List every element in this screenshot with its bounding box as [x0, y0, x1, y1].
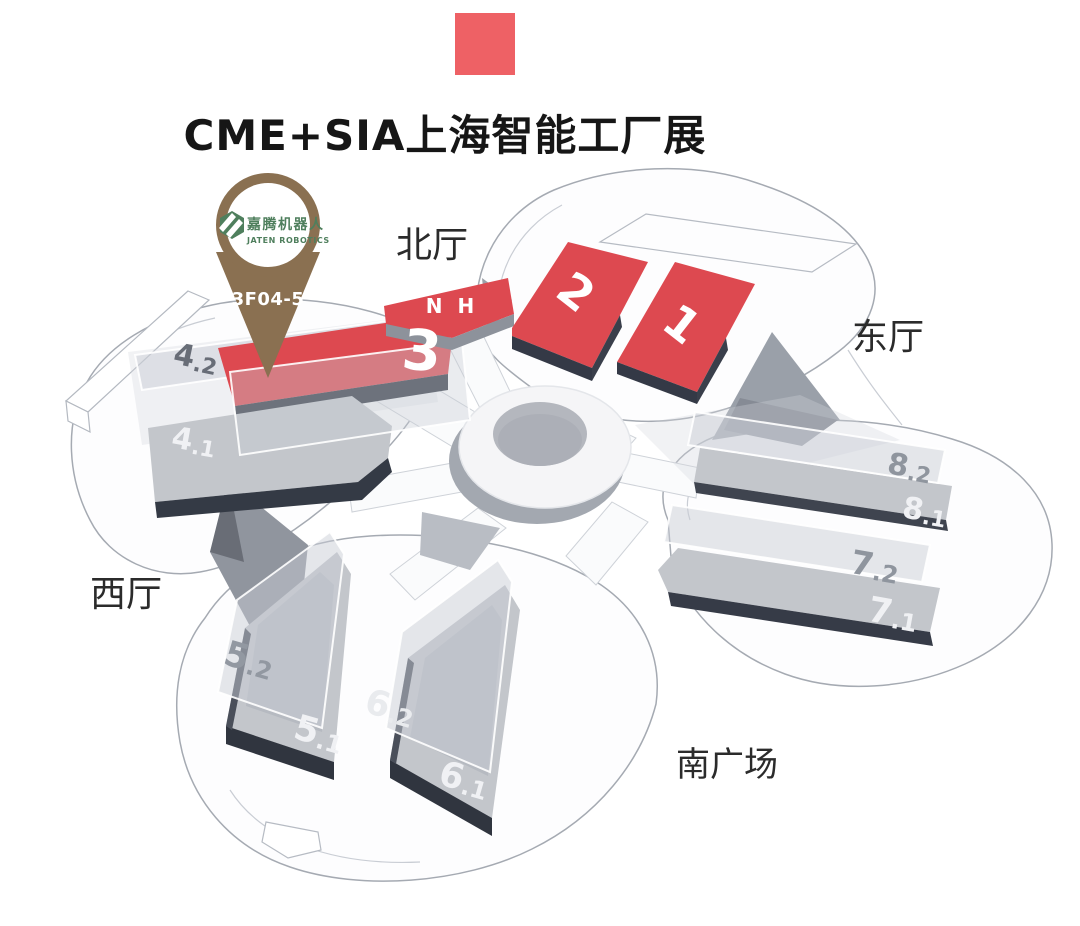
hall-3-label: 3 — [399, 317, 445, 386]
brand-name-cn: 嘉腾机器人 — [246, 216, 325, 233]
center-ring-hole-shade — [498, 414, 582, 466]
venue-map: CME+SIA上海智能工厂展 — [0, 0, 1080, 926]
hall-nh-label: N H — [426, 294, 478, 318]
hall-7-2-label-sub: .2 — [870, 558, 900, 590]
north-east-connector-line — [848, 350, 902, 425]
accent-square — [455, 13, 515, 75]
page-title: CME+SIA上海智能工厂展 — [184, 111, 707, 160]
west-hall-label: 西厅 — [90, 574, 162, 615]
east-hall-label: 东厅 — [852, 317, 924, 358]
hall-7-1-label-sub: .1 — [889, 606, 919, 638]
booth-number: 3F04-5 — [232, 289, 305, 310]
hall-8-2-label-sub: .2 — [905, 461, 933, 490]
venue-map-page: CME+SIA上海智能工厂展 — [0, 0, 1080, 926]
north-hall-label: 北厅 — [396, 225, 468, 266]
south-plaza-label: 南广场 — [676, 745, 778, 785]
hall-4-1-label-sub: .1 — [189, 435, 217, 464]
brand-name-en: JATEN ROBOTICS — [246, 236, 330, 245]
hall-8-1-label-sub: .1 — [920, 505, 948, 534]
